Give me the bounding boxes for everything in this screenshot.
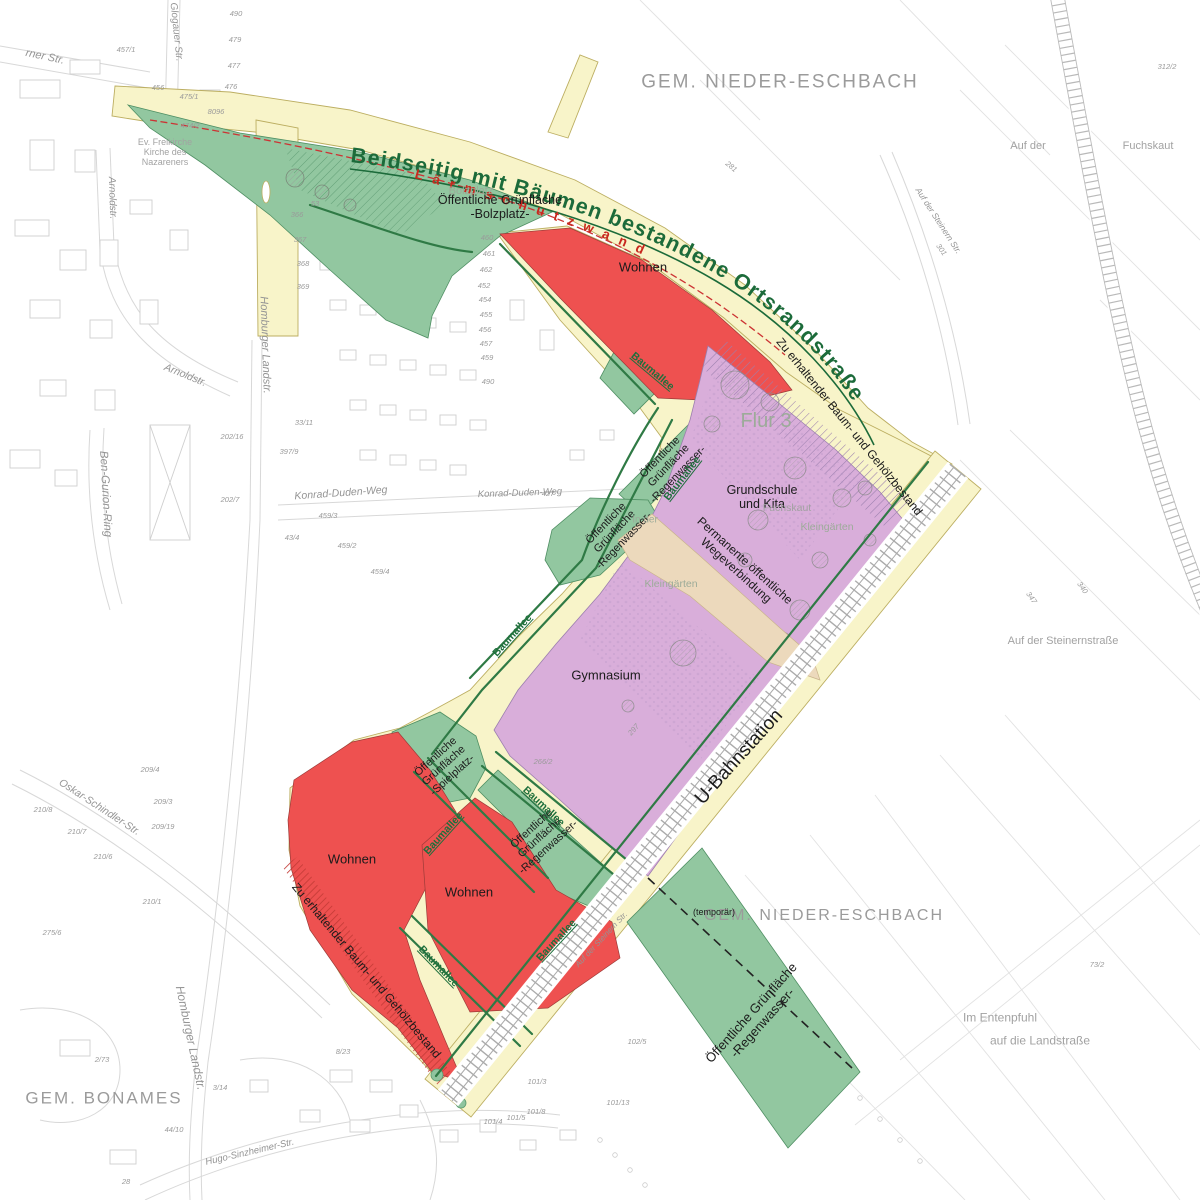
map-canvas: Beidseitig mit Bäumen bestandene Ortsran…	[0, 0, 1200, 1200]
development-plan-map: Beidseitig mit Bäumen bestandene Ortsran…	[0, 0, 1200, 1200]
traffic-island	[262, 181, 270, 203]
